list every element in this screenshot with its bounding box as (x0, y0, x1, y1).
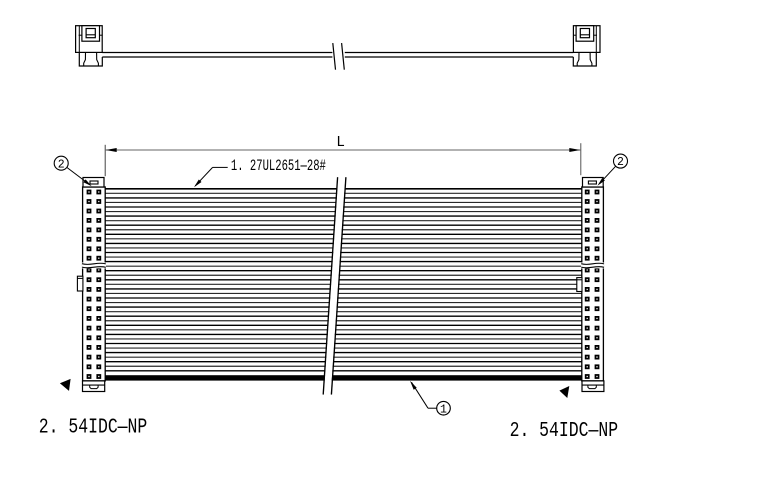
svg-text:2. 54IDC—NP: 2. 54IDC—NP (39, 415, 147, 439)
svg-text:L: L (336, 135, 345, 151)
svg-text:2. 54IDC—NP: 2. 54IDC—NP (510, 418, 618, 442)
svg-text:2: 2 (617, 156, 624, 169)
svg-text:1. 27UL2651—28#: 1. 27UL2651—28# (231, 158, 326, 176)
svg-text:2: 2 (58, 158, 65, 171)
svg-text:1: 1 (440, 403, 447, 416)
